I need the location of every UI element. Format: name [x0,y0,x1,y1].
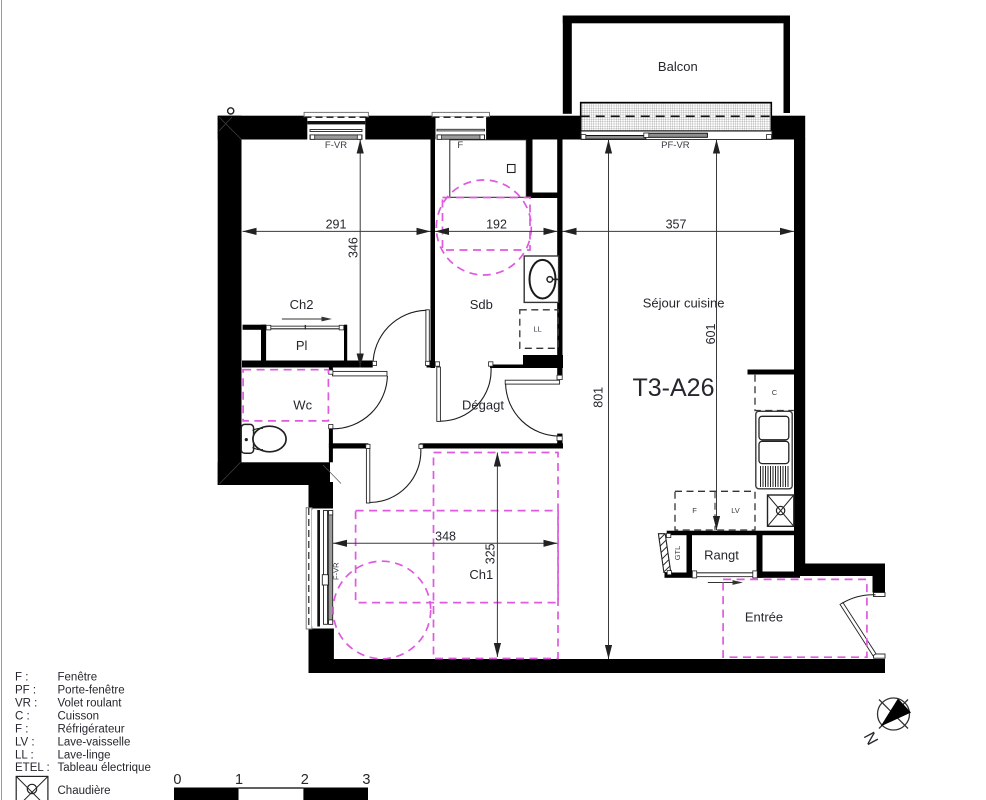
svg-text:325: 325 [484,543,498,564]
svg-text:Ch1: Ch1 [469,567,493,582]
svg-text:3: 3 [362,772,370,788]
svg-text:Rangt: Rangt [704,548,739,563]
svg-text:601: 601 [704,324,718,345]
svg-text:0: 0 [173,772,181,788]
svg-text:Cuisson: Cuisson [58,711,100,723]
svg-text:1: 1 [235,772,243,788]
svg-text:C :: C : [15,711,30,723]
svg-text:F :: F : [15,672,28,684]
svg-text:F-VR: F-VR [332,562,341,580]
svg-text:LV :: LV : [15,737,35,749]
svg-text:Chaudière: Chaudière [58,785,111,797]
svg-text:357: 357 [666,218,687,232]
svg-text:2: 2 [301,772,309,788]
svg-text:F :: F : [15,724,28,736]
svg-text:Lave-vaisselle: Lave-vaisselle [58,737,131,749]
svg-text:Lave-linge: Lave-linge [58,750,111,762]
svg-text:C: C [772,388,778,397]
svg-text:F-VR: F-VR [325,140,347,151]
svg-text:PF-VR: PF-VR [661,140,690,151]
svg-text:192: 192 [486,218,507,232]
svg-text:Ch2: Ch2 [290,297,314,312]
svg-text:Séjour cuisine: Séjour cuisine [643,296,725,311]
svg-text:ETEL :: ETEL : [15,762,50,774]
svg-text:F: F [692,506,697,515]
svg-text:Balcon: Balcon [658,59,698,74]
svg-text:Fenêtre: Fenêtre [58,672,98,684]
svg-text:Volet roulant: Volet roulant [58,698,123,710]
svg-text:801: 801 [592,387,606,408]
svg-text:Dégagt: Dégagt [462,398,504,413]
svg-text:PF :: PF : [15,685,36,697]
svg-text:Wc: Wc [293,398,312,413]
svg-text:348: 348 [435,530,456,544]
svg-text:Sdb: Sdb [470,297,493,312]
svg-text:LL :: LL : [15,750,34,762]
svg-text:Tableau électrique: Tableau électrique [58,762,151,774]
svg-text:Réfrigérateur: Réfrigérateur [58,724,125,736]
svg-text:Pl: Pl [296,338,308,353]
svg-text:GTL: GTL [673,546,682,561]
svg-text:Porte-fenêtre: Porte-fenêtre [58,685,125,697]
svg-text:291: 291 [326,218,347,232]
svg-text:LL: LL [533,325,541,334]
svg-text:346: 346 [346,237,360,258]
svg-text:F: F [457,140,463,151]
svg-text:T3-A26: T3-A26 [633,374,715,402]
svg-text:Entrée: Entrée [745,610,783,625]
svg-text:LV: LV [731,506,740,515]
svg-text:VR :: VR : [15,698,37,710]
